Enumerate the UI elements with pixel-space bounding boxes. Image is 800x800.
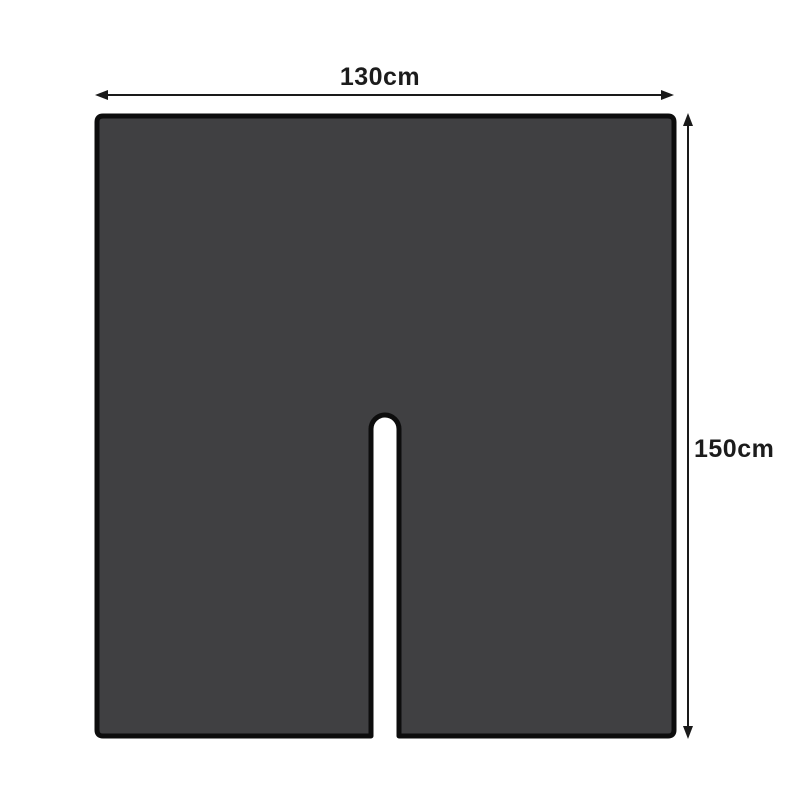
- cover-shape: [97, 116, 674, 736]
- height-dimension-label: 150cm: [694, 435, 774, 464]
- diagram-canvas: [0, 0, 800, 800]
- height-arrow-top-head-icon: [683, 113, 693, 126]
- height-dimension-arrow: [683, 113, 693, 739]
- width-dimension-label: 130cm: [320, 63, 440, 92]
- product-dimension-diagram: 130cm 150cm: [0, 0, 800, 800]
- height-arrow-bottom-head-icon: [683, 726, 693, 739]
- width-arrow-left-head-icon: [95, 90, 108, 100]
- width-arrow-right-head-icon: [661, 90, 674, 100]
